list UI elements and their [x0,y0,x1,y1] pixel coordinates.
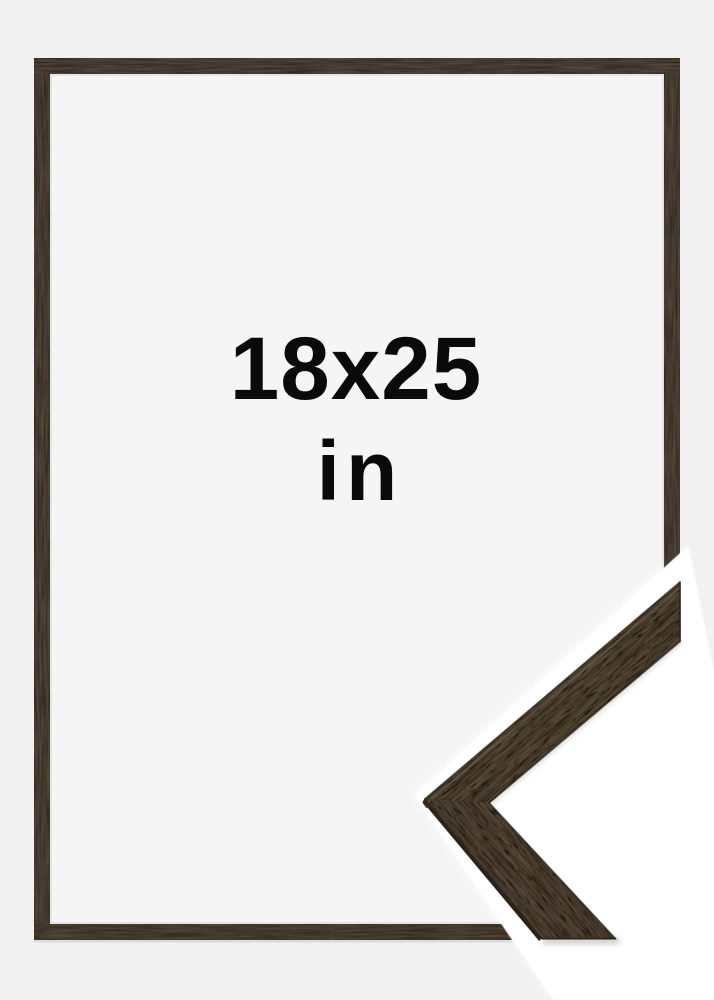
svg-text:in: in [317,424,404,518]
svg-text:18x25: 18x25 [230,318,483,418]
